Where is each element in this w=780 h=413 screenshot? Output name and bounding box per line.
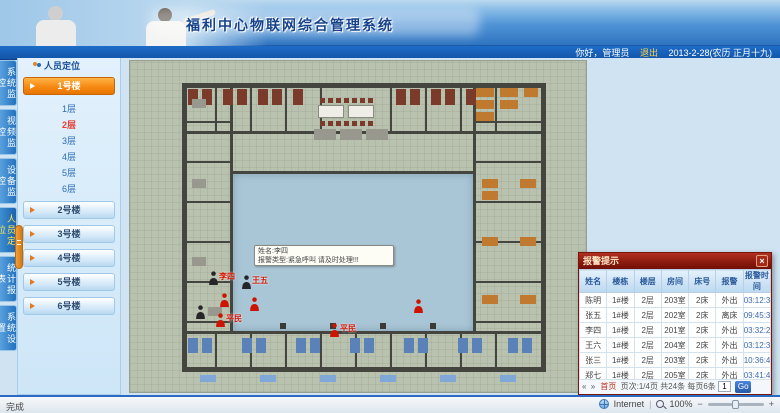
wall-segment: [425, 88, 427, 131]
floor-item[interactable]: 1层: [18, 101, 120, 117]
building-label: 1号楼: [57, 81, 80, 91]
furniture-item: [410, 89, 420, 105]
wall-segment: [285, 334, 287, 367]
column-header: 报警时间: [743, 270, 770, 293]
magnifier-icon: [656, 400, 664, 408]
zoom-slider[interactable]: [708, 403, 764, 406]
alarm-table-header: 姓名楼栋楼层房间床号报警报警时间: [580, 270, 771, 293]
furniture-item: [344, 98, 349, 103]
table-row[interactable]: 王六1#楼2层204室2床外出03:12:38: [580, 338, 771, 353]
person-icon: [241, 275, 252, 289]
furniture-item: [430, 323, 436, 329]
page-info: 页次:1/4页: [621, 382, 658, 391]
nav-tabs: 系统监控视频监控设备监控人员定位统计报表系统设置: [0, 60, 17, 354]
furniture-item: [360, 98, 365, 103]
wall-segment: [495, 334, 497, 367]
arrow-icon: [30, 83, 35, 89]
furniture-item: [368, 121, 373, 126]
nav-tab-系统设置[interactable]: 系统设置: [0, 305, 17, 351]
wall-segment: [495, 88, 497, 131]
cell: 张五: [580, 308, 607, 323]
cell: 陈明: [580, 293, 607, 308]
floor-item[interactable]: 3层: [18, 133, 120, 149]
furniture-item: [192, 179, 206, 188]
cell: 2层: [634, 323, 661, 338]
wall-segment: [230, 171, 476, 174]
furniture-item: [237, 89, 247, 105]
zone-label: Internet: [614, 399, 645, 409]
wall-segment: [476, 281, 541, 283]
arrow-icon: [30, 279, 35, 285]
furniture-item: [476, 100, 494, 109]
cell: 外出: [716, 293, 743, 308]
table-row[interactable]: 张三1#楼2层203室2床外出10:36:47: [580, 353, 771, 368]
person-icon: [413, 299, 424, 313]
furniture-item: [192, 257, 206, 266]
wall-segment: [182, 121, 230, 123]
person-marker-red[interactable]: 平民: [214, 313, 226, 327]
cell: 2床: [689, 353, 716, 368]
alarm-table: 姓名楼栋楼层房间床号报警报警时间 陈明1#楼2层203室2床外出03:12:38…: [579, 269, 771, 383]
zoom-in-button[interactable]: +: [769, 399, 774, 409]
wall-segment: [182, 241, 230, 243]
person-icon: [208, 271, 219, 285]
furniture-item: [482, 295, 498, 304]
column-header: 报警: [716, 270, 743, 293]
building-label: 2号楼: [57, 205, 80, 215]
person-icon: [219, 293, 230, 307]
logout-link[interactable]: 退出: [640, 48, 658, 58]
column-header: 楼栋: [607, 270, 634, 293]
page-title: 福利中心物联网综合管理系统: [186, 15, 394, 35]
furniture-item: [318, 105, 344, 118]
cell: 10:36:47: [743, 353, 770, 368]
alarm-popup-title[interactable]: 报警提示 ×: [579, 253, 771, 269]
wall-segment: [215, 334, 217, 367]
zoom-out-button[interactable]: −: [697, 399, 702, 409]
greeting-text: 你好，管理员: [575, 48, 629, 58]
furniture-item: [328, 98, 333, 103]
cell: 1#楼: [607, 338, 634, 353]
cell: 2床: [689, 293, 716, 308]
nav-tab-设备监控[interactable]: 设备监控: [0, 158, 17, 204]
column-header: 房间: [661, 270, 688, 293]
furniture-item: [364, 338, 374, 353]
wall-segment: [250, 88, 252, 131]
floor-list: 1层2层3层4层5层6层: [18, 101, 120, 197]
person-icon: [249, 297, 260, 311]
furniture-item: [508, 338, 518, 353]
photo-person1-head: [48, 6, 63, 21]
building-button[interactable]: 4号楼: [23, 249, 115, 267]
column-header: 床号: [689, 270, 716, 293]
furniture-item: [328, 121, 333, 126]
status-bar: 完成 Internet | 100% − +: [0, 395, 780, 413]
nav-tab-系统监控[interactable]: 系统监控: [0, 60, 17, 106]
zoom-level: 100%: [669, 399, 692, 409]
cell: 2床: [689, 323, 716, 338]
close-icon[interactable]: ×: [756, 255, 768, 267]
total-info: 共24条: [660, 382, 685, 391]
pagination-bar: « » 首页 页次:1/4页 共24条 每页6条 Go: [579, 379, 771, 394]
person-label: 李四: [219, 271, 235, 282]
furniture-item: [188, 338, 198, 353]
building-list: 1号楼1层2层3层4层5层6层2号楼3号楼4号楼5号楼6号楼: [18, 77, 120, 315]
cell: 204室: [661, 338, 688, 353]
cell: 李四: [580, 323, 607, 338]
wall-segment: [182, 331, 546, 334]
wall-segment: [476, 161, 541, 163]
furniture-item: [366, 129, 388, 140]
building-button[interactable]: 3号楼: [23, 225, 115, 243]
cell: 203室: [661, 293, 688, 308]
furniture-item: [320, 375, 336, 382]
date-text: 2013-2-28(农历 正月十九): [668, 48, 772, 58]
furniture-item: [336, 121, 341, 126]
person-marker-black[interactable]: 王五: [240, 275, 252, 289]
furniture-item: [320, 98, 325, 103]
furniture-item: [445, 89, 455, 105]
wall-segment: [182, 201, 230, 203]
wall-segment: [230, 83, 233, 334]
person-icon: [195, 305, 206, 319]
person-label: 平民: [340, 323, 356, 334]
furniture-item: [440, 375, 456, 382]
person-label: 王五: [252, 275, 268, 286]
cell: 202室: [661, 308, 688, 323]
panel-title: 人员定位: [18, 58, 120, 75]
wall-segment: [390, 334, 392, 367]
tooltip-line1: 姓名:李四: [258, 247, 390, 256]
building-label: 4号楼: [57, 253, 80, 263]
person-label: 平民: [226, 313, 242, 324]
nav-tab-视频监控[interactable]: 视频监控: [0, 109, 17, 155]
furniture-item: [314, 129, 336, 140]
furniture-item: [258, 89, 268, 105]
wall-segment: [390, 88, 392, 131]
furniture-item: [348, 105, 374, 118]
cell: 2层: [634, 338, 661, 353]
cell: 张三: [580, 353, 607, 368]
furniture-item: [520, 295, 536, 304]
arrow-icon: [30, 255, 35, 261]
furniture-item: [192, 99, 206, 108]
furniture-item: [482, 191, 498, 200]
furniture-item: [272, 89, 282, 105]
wall-segment: [476, 121, 541, 123]
cell: 03:12:38: [743, 293, 770, 308]
furniture-item: [256, 338, 266, 353]
wall-segment: [320, 334, 322, 367]
building-button[interactable]: 6号楼: [23, 297, 115, 315]
wall-segment: [460, 88, 462, 131]
cell: 外出: [716, 338, 743, 353]
arrow-icon: [30, 207, 35, 213]
furniture-item: [522, 338, 532, 353]
furniture-item: [482, 179, 498, 188]
table-row[interactable]: 张五1#楼2层202室2床离床09:45:34: [580, 308, 771, 323]
cell: 外出: [716, 323, 743, 338]
furniture-item: [458, 338, 468, 353]
furniture-item: [466, 89, 476, 105]
furniture-item: [340, 129, 362, 140]
person-marker-red[interactable]: [218, 293, 230, 307]
person-icon: [215, 313, 226, 327]
globe-icon: [599, 399, 609, 409]
wall-segment: [285, 88, 287, 131]
floor-item[interactable]: 2层: [18, 117, 120, 133]
wall-segment: [182, 367, 546, 372]
people-icon: [32, 62, 41, 70]
cell: 201室: [661, 323, 688, 338]
alarm-tooltip: 姓名:李四 报警类型:紧急呼叫 请及时处理!!!: [254, 245, 394, 266]
furniture-item: [260, 375, 276, 382]
sidebar-panel: 人员定位 1号楼1层2层3层4层5层6层2号楼3号楼4号楼5号楼6号楼: [17, 58, 121, 395]
cell: 2层: [634, 293, 661, 308]
wall-segment: [182, 131, 546, 134]
wall-segment: [476, 201, 541, 203]
cell: 1#楼: [607, 293, 634, 308]
person-marker-red[interactable]: [412, 299, 424, 313]
next-page-link[interactable]: »: [591, 382, 595, 391]
furniture-item: [352, 121, 357, 126]
goto-page-input[interactable]: [718, 381, 731, 392]
furniture-item: [223, 89, 233, 105]
furniture-item: [352, 98, 357, 103]
furniture-item: [310, 338, 320, 353]
furniture-item: [242, 338, 252, 353]
building-label: 6号楼: [57, 301, 80, 311]
building-label: 5号楼: [57, 277, 80, 287]
status-text: 完成: [6, 400, 24, 413]
furniture-item: [431, 89, 441, 105]
building-button[interactable]: 5号楼: [23, 273, 115, 291]
furniture-item: [524, 88, 538, 97]
perpage-info: 每页6条: [687, 382, 715, 391]
tooltip-line2: 报警类型:紧急呼叫 请及时处理!!!: [258, 256, 390, 265]
furniture-item: [202, 338, 212, 353]
arrow-icon: [30, 303, 35, 309]
furniture-item: [280, 323, 286, 329]
furniture-item: [396, 89, 406, 105]
wall-segment: [182, 83, 187, 372]
person-marker-black[interactable]: 李四: [207, 271, 219, 285]
furniture-item: [476, 112, 494, 121]
wall-segment: [215, 88, 217, 131]
furniture-item: [404, 338, 414, 353]
person-marker-red[interactable]: [248, 297, 260, 311]
cell: 1#楼: [607, 308, 634, 323]
furniture-item: [476, 88, 494, 97]
furniture-item: [500, 88, 518, 97]
cell: 09:45:34: [743, 308, 770, 323]
cell: 1#楼: [607, 353, 634, 368]
furniture-item: [336, 98, 341, 103]
furniture-item: [500, 375, 516, 382]
furniture-item: [344, 121, 349, 126]
furniture-item: [200, 375, 216, 382]
furniture-item: [482, 237, 498, 246]
cell: 2床: [689, 308, 716, 323]
furniture-item: [500, 100, 518, 109]
person-icon: [329, 323, 340, 337]
floorplan[interactable]: 李四 王五 平民 平民 姓名:李四 报警类型:紧急呼叫 请及时处理!!!: [129, 60, 587, 393]
photo-person1-body: [36, 20, 76, 46]
arrow-icon: [30, 231, 35, 237]
cell: 203室: [661, 353, 688, 368]
floor-item[interactable]: 6层: [18, 181, 120, 197]
sidebar-collapse-handle[interactable]: [15, 225, 23, 269]
furniture-item: [350, 338, 360, 353]
furniture-item: [380, 375, 396, 382]
cell: 1#楼: [607, 323, 634, 338]
person-marker-red[interactable]: 平民: [328, 323, 340, 337]
cell: 外出: [716, 353, 743, 368]
building-button[interactable]: 1号楼: [23, 77, 115, 95]
person-marker-black[interactable]: [194, 305, 206, 319]
furniture-item: [368, 98, 373, 103]
furniture-item: [520, 237, 536, 246]
cell: 2层: [634, 353, 661, 368]
furniture-item: [472, 338, 482, 353]
cell: 离床: [716, 308, 743, 323]
alarm-popup: 报警提示 × 姓名楼栋楼层房间床号报警报警时间 陈明1#楼2层203室2床外出0…: [578, 252, 772, 395]
furniture-item: [296, 338, 306, 353]
furniture-item: [293, 89, 303, 105]
cell: 03:32:25: [743, 323, 770, 338]
floor-item[interactable]: 4层: [18, 149, 120, 165]
go-button[interactable]: Go: [735, 381, 751, 393]
furniture-item: [418, 338, 428, 353]
first-page-link[interactable]: 首页: [600, 382, 616, 391]
cell: 王六: [580, 338, 607, 353]
zoom-slider-thumb[interactable]: [732, 400, 739, 409]
app-header: 福利中心物联网综合管理系统: [0, 0, 780, 46]
prev-page-link[interactable]: «: [582, 382, 586, 391]
column-header: 楼层: [634, 270, 661, 293]
cell: 2床: [689, 338, 716, 353]
cell: 2层: [634, 308, 661, 323]
building-button[interactable]: 2号楼: [23, 201, 115, 219]
floor-item[interactable]: 5层: [18, 165, 120, 181]
column-header: 姓名: [580, 270, 607, 293]
furniture-item: [380, 323, 386, 329]
wall-segment: [541, 83, 546, 372]
wall-segment: [182, 161, 230, 163]
cell: 03:12:38: [743, 338, 770, 353]
furniture-item: [360, 121, 365, 126]
furniture-item: [320, 121, 325, 126]
wall-segment: [476, 321, 541, 323]
table-row[interactable]: 李四1#楼2层201室2床外出03:32:25: [580, 323, 771, 338]
furniture-item: [520, 179, 536, 188]
table-row[interactable]: 陈明1#楼2层203室2床外出03:12:38: [580, 293, 771, 308]
building-label: 3号楼: [57, 229, 80, 239]
